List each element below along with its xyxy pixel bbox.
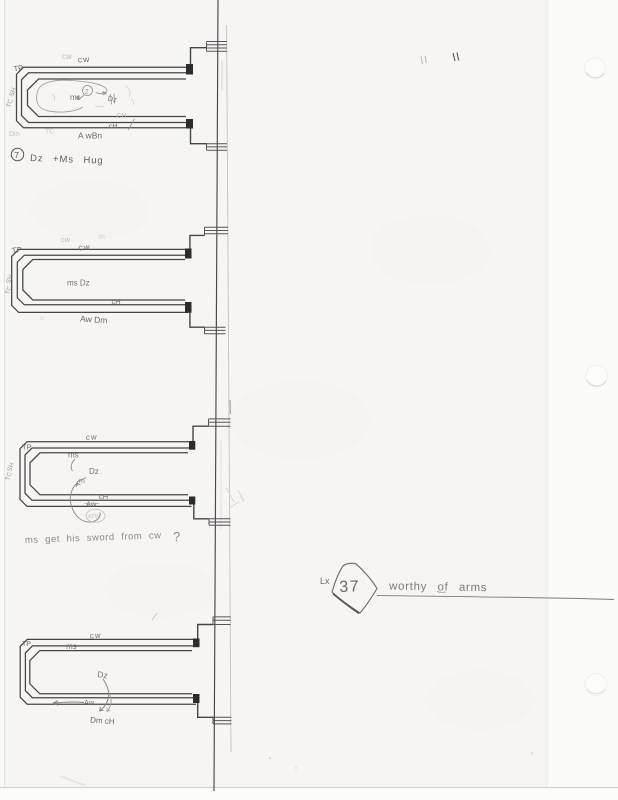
svg-text:cH: cH <box>109 122 118 131</box>
svg-text:cH: cH <box>99 492 108 501</box>
svg-text:Dm: Dm <box>9 131 20 138</box>
svg-text:Dm cH: Dm cH <box>90 716 115 727</box>
svg-text:ms: ms <box>70 93 81 102</box>
svg-text:ms Dz: ms Dz <box>67 279 90 288</box>
svg-text:Aw: Aw <box>84 698 95 707</box>
svg-text:TC: TC <box>45 129 54 136</box>
svg-text:cw: cw <box>62 52 72 61</box>
svg-text:Aw: Aw <box>86 500 97 509</box>
svg-text:cH: cH <box>112 297 121 306</box>
svg-text:m: m <box>99 234 105 241</box>
svg-text:TP: TP <box>22 641 31 648</box>
svg-text:Lx: Lx <box>320 576 330 586</box>
svg-text:cw: cw <box>86 432 98 442</box>
svg-text:cw: cw <box>61 235 71 244</box>
svg-text:2: 2 <box>85 89 89 96</box>
svg-text:ms: ms <box>66 642 77 651</box>
svg-text:cw: cw <box>78 54 91 65</box>
svg-text:?: ? <box>173 529 180 544</box>
svg-text:CH: CH <box>117 113 127 120</box>
svg-text:Dz: Dz <box>89 467 99 476</box>
svg-text:cw: cw <box>78 242 91 253</box>
svg-text:A wBn: A wBn <box>78 131 102 141</box>
svg-text:u: u <box>40 315 44 322</box>
svg-text:worthy of arms: worthy of arms <box>388 580 487 594</box>
svg-text:TP: TP <box>11 245 22 255</box>
svg-text:37: 37 <box>339 578 360 596</box>
svg-text:ms: ms <box>68 451 79 460</box>
svg-text:Dz: Dz <box>107 94 118 104</box>
svg-text:TP: TP <box>13 63 24 74</box>
svg-text:cw: cw <box>90 631 102 641</box>
svg-text:TP: TP <box>22 443 32 452</box>
svg-text:Aw Dm: Aw Dm <box>80 314 108 326</box>
svg-text:7: 7 <box>14 150 19 160</box>
svg-text:Dz: Dz <box>97 669 109 680</box>
